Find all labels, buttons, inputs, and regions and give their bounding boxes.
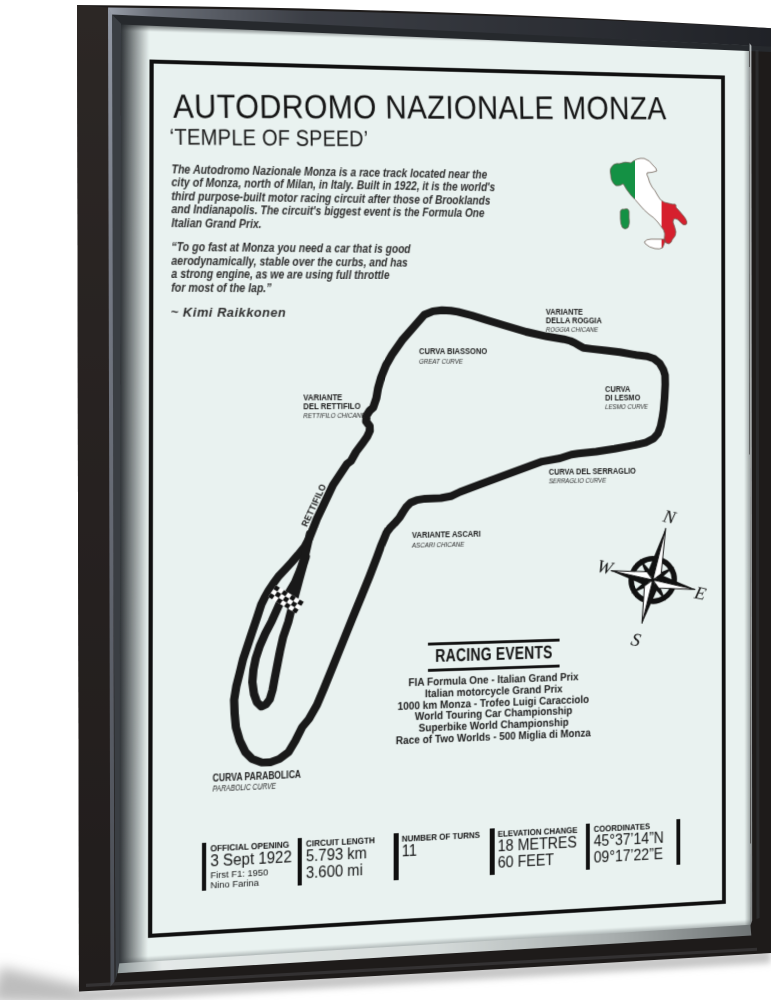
svg-text:W: W — [595, 556, 616, 579]
svg-text:N: N — [660, 506, 679, 529]
svg-text:S: S — [629, 629, 643, 651]
svg-text:E: E — [691, 582, 707, 604]
